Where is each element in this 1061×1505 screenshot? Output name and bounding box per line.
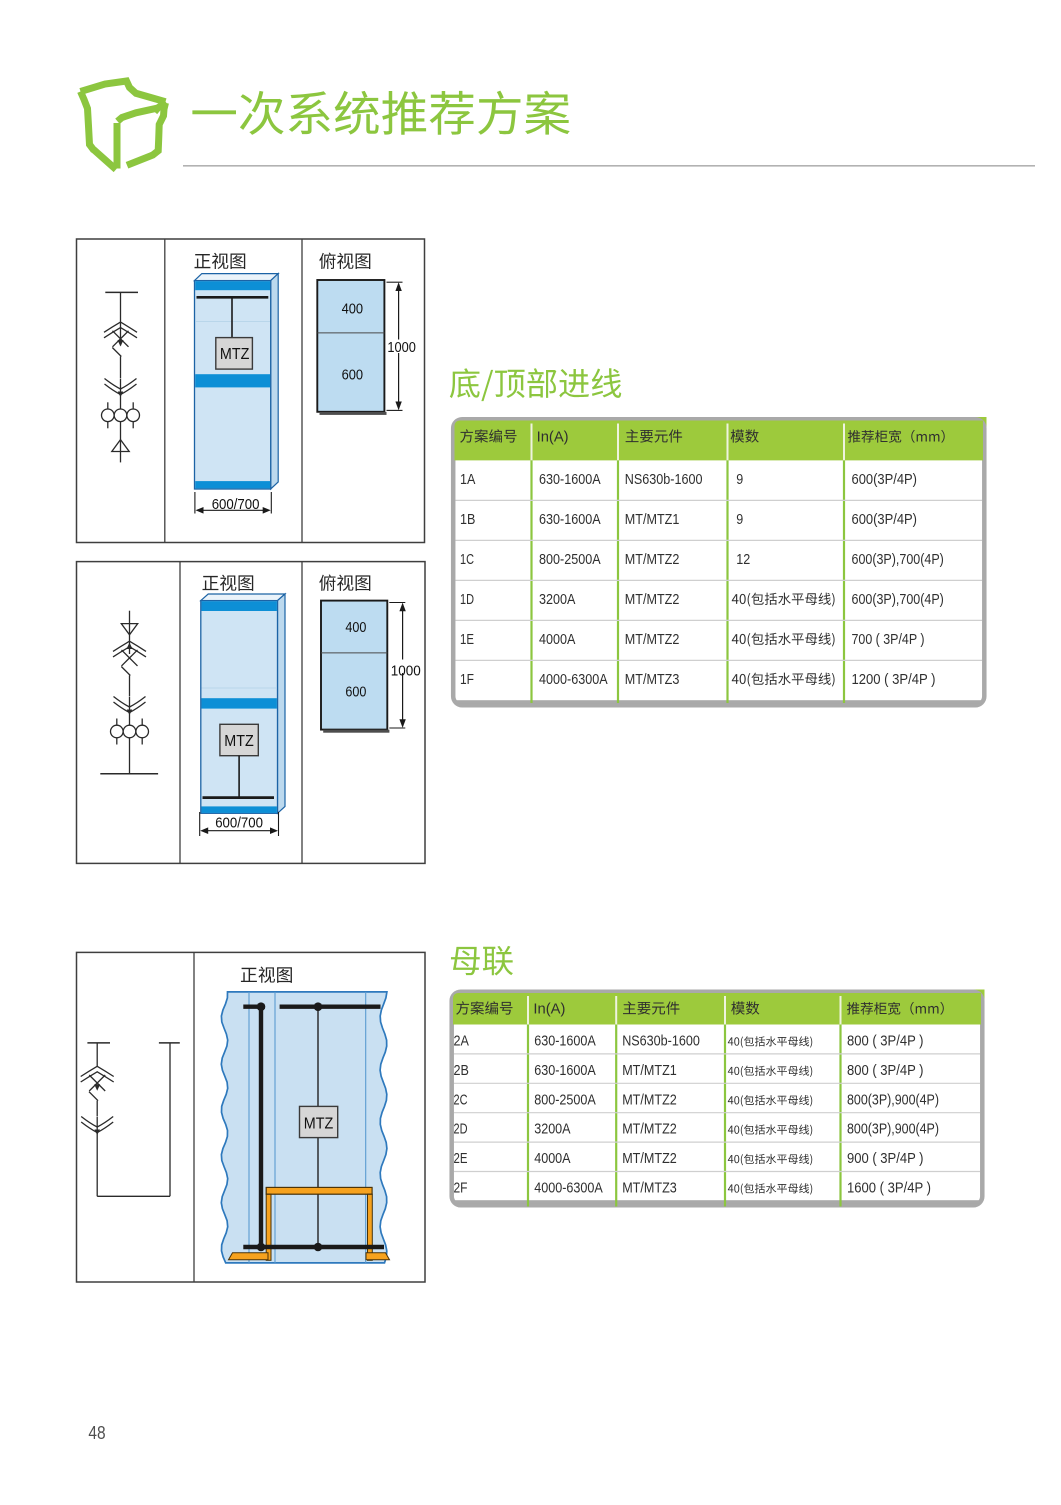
svg-text:800(3P),900(4P): 800(3P),900(4P) (847, 1092, 939, 1108)
svg-text:800-2500A: 800-2500A (539, 552, 601, 568)
svg-text:1A: 1A (460, 472, 476, 488)
svg-text:2A: 2A (454, 1034, 470, 1050)
svg-text:630-1600A: 630-1600A (534, 1063, 596, 1079)
svg-text:3200A: 3200A (534, 1122, 571, 1138)
svg-text:1200 ( 3P/4P ): 1200 ( 3P/4P ) (852, 672, 936, 688)
svg-text:1B: 1B (460, 512, 475, 528)
svg-text:600(3P/4P): 600(3P/4P) (852, 512, 918, 528)
svg-text:NS630b-1600: NS630b-1600 (622, 1034, 700, 1050)
svg-text:630-1600A: 630-1600A (539, 512, 601, 528)
svg-text:MT/MTZ2: MT/MTZ2 (625, 632, 680, 648)
svg-text:MT/MTZ2: MT/MTZ2 (625, 592, 680, 608)
svg-text:800-2500A: 800-2500A (534, 1092, 596, 1108)
svg-text:9: 9 (736, 512, 743, 528)
svg-text:1D: 1D (460, 592, 474, 608)
svg-text:800 ( 3P/4P ): 800 ( 3P/4P ) (847, 1063, 924, 1079)
svg-text:MTZ: MTZ (224, 733, 254, 750)
svg-text:2C: 2C (454, 1092, 468, 1108)
svg-text:1000: 1000 (387, 339, 416, 356)
svg-text:48: 48 (88, 1423, 105, 1443)
svg-text:9: 9 (736, 472, 743, 488)
svg-text:In(A): In(A) (537, 430, 569, 446)
svg-text:3200A: 3200A (539, 592, 576, 608)
svg-text:600(3P),700(4P): 600(3P),700(4P) (852, 552, 944, 568)
svg-text:4000-6300A: 4000-6300A (534, 1181, 603, 1197)
svg-text:MT/MTZ2: MT/MTZ2 (622, 1092, 677, 1108)
svg-text:900 ( 3P/4P ): 900 ( 3P/4P ) (847, 1151, 924, 1167)
svg-text:2E: 2E (454, 1151, 468, 1167)
svg-text:1F: 1F (460, 672, 474, 688)
svg-text:600(3P/4P): 600(3P/4P) (852, 472, 918, 488)
svg-text:MT/MTZ2: MT/MTZ2 (625, 552, 680, 568)
svg-text:1000: 1000 (391, 663, 421, 680)
svg-text:MT/MTZ1: MT/MTZ1 (622, 1063, 677, 1079)
svg-text:600/700: 600/700 (215, 814, 263, 831)
svg-text:700 ( 3P/4P ): 700 ( 3P/4P ) (852, 632, 925, 648)
svg-text:1E: 1E (460, 632, 474, 648)
svg-text:4000A: 4000A (539, 632, 576, 648)
svg-text:MT/MTZ3: MT/MTZ3 (622, 1181, 677, 1197)
svg-text:2F: 2F (454, 1181, 468, 1197)
svg-text:2D: 2D (454, 1122, 468, 1138)
svg-text:MT/MTZ1: MT/MTZ1 (625, 512, 680, 528)
svg-text:1C: 1C (460, 552, 474, 568)
svg-text:630-1600A: 630-1600A (534, 1034, 596, 1050)
svg-text:630-1600A: 630-1600A (539, 472, 601, 488)
svg-text:NS630b-1600: NS630b-1600 (625, 472, 703, 488)
svg-text:MTZ: MTZ (304, 1115, 334, 1132)
svg-text:4000-6300A: 4000-6300A (539, 672, 608, 688)
svg-text:600: 600 (342, 367, 364, 384)
svg-text:400: 400 (345, 619, 366, 636)
svg-text:MT/MTZ2: MT/MTZ2 (622, 1122, 677, 1138)
svg-text:MT/MTZ2: MT/MTZ2 (622, 1151, 677, 1167)
svg-text:MT/MTZ3: MT/MTZ3 (625, 672, 680, 688)
svg-text:800 ( 3P/4P ): 800 ( 3P/4P ) (847, 1034, 924, 1050)
svg-text:600: 600 (345, 684, 366, 701)
svg-text:600/700: 600/700 (212, 496, 260, 513)
svg-text:2B: 2B (454, 1063, 469, 1079)
svg-text:1600 ( 3P/4P ): 1600 ( 3P/4P ) (847, 1181, 931, 1197)
svg-text:400: 400 (342, 301, 364, 318)
svg-text:In(A): In(A) (533, 1002, 565, 1018)
svg-text:4000A: 4000A (534, 1151, 571, 1167)
svg-text:800(3P),900(4P): 800(3P),900(4P) (847, 1122, 939, 1138)
svg-text:MTZ: MTZ (220, 346, 250, 363)
svg-text:12: 12 (736, 552, 750, 568)
svg-text:600(3P),700(4P): 600(3P),700(4P) (852, 592, 944, 608)
